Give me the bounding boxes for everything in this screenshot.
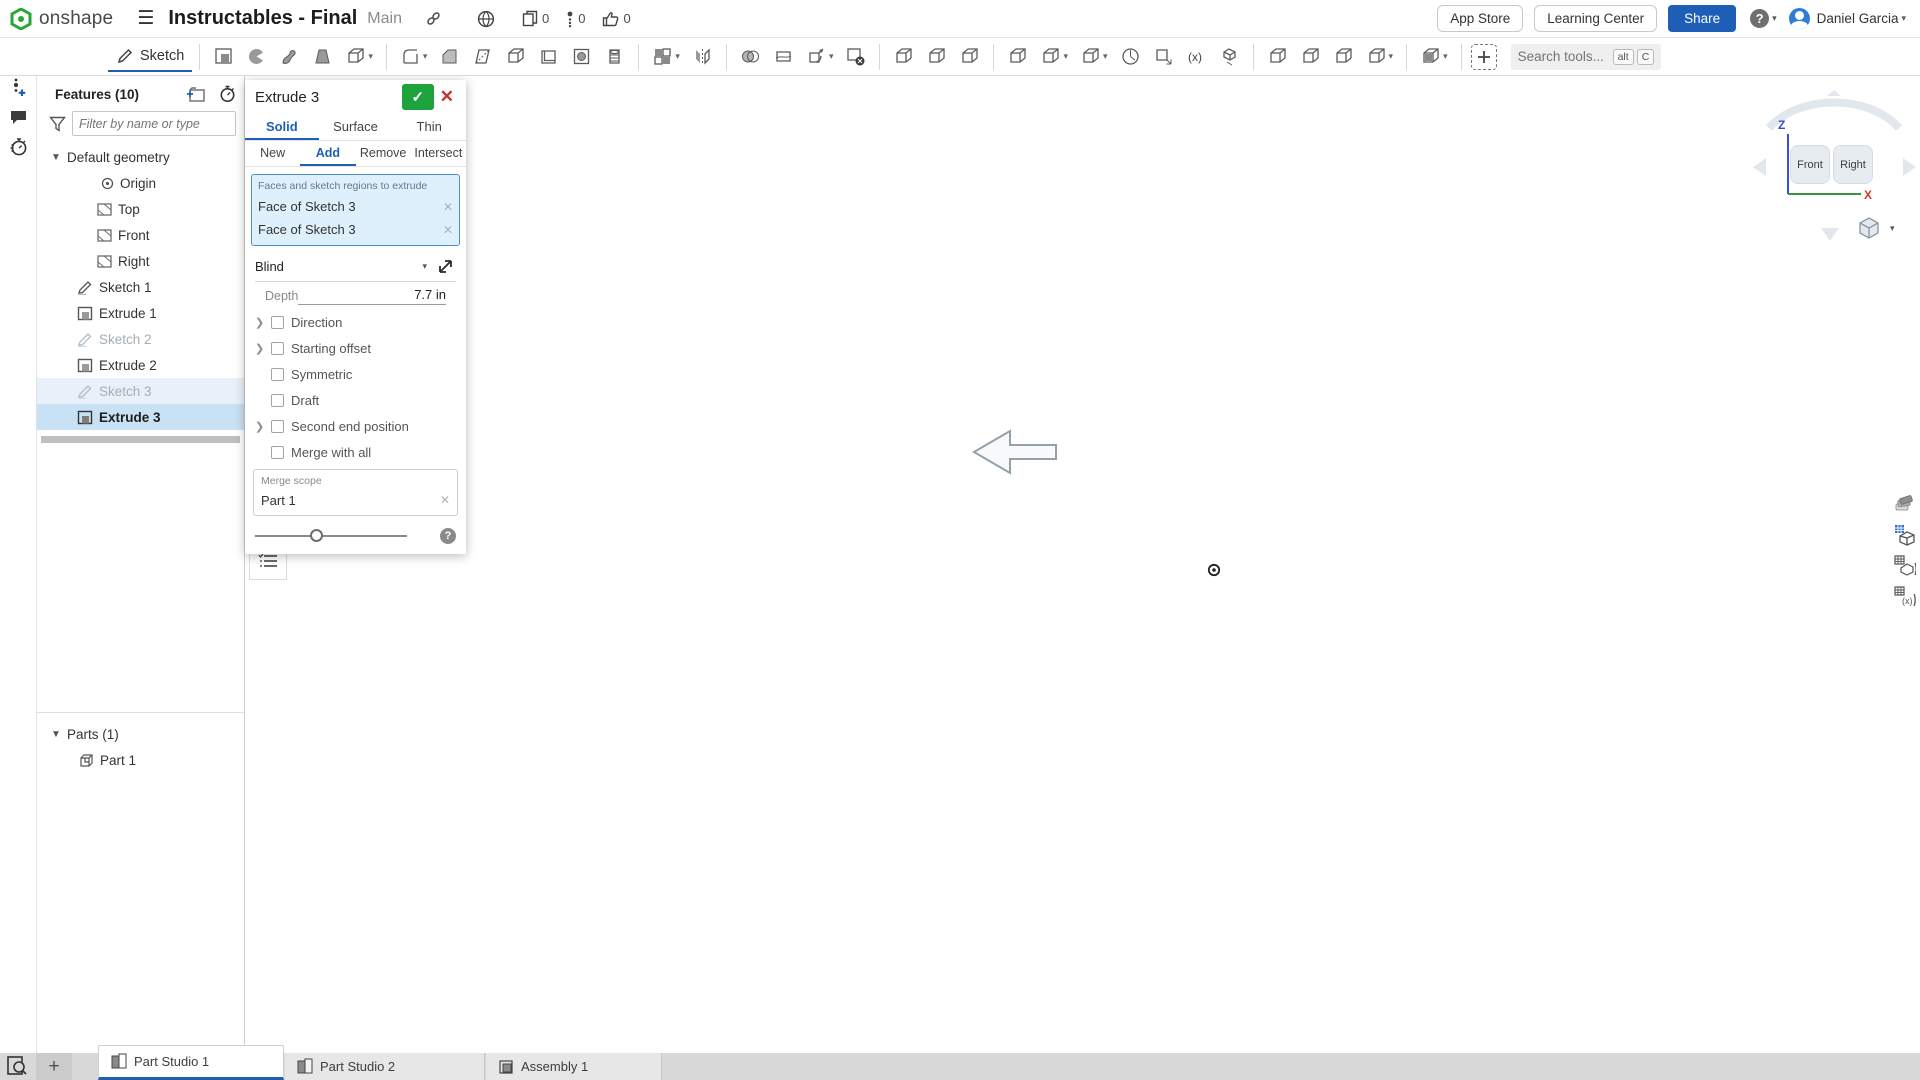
learning-center-button[interactable]: Learning Center [1534, 5, 1657, 32]
filter-icon[interactable] [49, 116, 66, 132]
left-icon-strip [0, 38, 37, 1053]
option-label: Starting offset [291, 341, 371, 356]
search-tools[interactable]: alt C [1511, 44, 1662, 70]
opacity-slider[interactable] [255, 535, 407, 537]
main-menu-icon[interactable]: ☰ [123, 7, 168, 30]
tree-label: Extrude 2 [99, 358, 157, 373]
replace-face-tool-icon[interactable] [955, 43, 984, 70]
tree-label: Extrude 1 [99, 306, 157, 321]
sketch-tool-button[interactable]: Sketch [108, 42, 192, 72]
end-condition-value: Blind [255, 259, 419, 274]
view-cube[interactable]: Front Right Z X ▾ [1745, 88, 1920, 253]
origin-icon [101, 177, 114, 190]
tab-label: Assembly 1 [521, 1059, 588, 1074]
tree-label: Part 1 [100, 753, 136, 768]
toolbar-separator [1461, 44, 1462, 70]
toolbar-separator [1253, 44, 1254, 70]
help-caret-icon[interactable]: ▾ [1772, 13, 1777, 24]
sketch-label: Sketch [140, 48, 184, 64]
tree-extrude-2[interactable]: Extrude 2 [37, 352, 244, 378]
selection-item-label: Face of Sketch 3 [258, 199, 356, 214]
issues-icon [566, 10, 574, 28]
tab-new[interactable]: New [245, 141, 300, 166]
add-folder-icon[interactable] [186, 87, 205, 102]
sketch-icon [77, 280, 93, 295]
sheet-metal-table-caret-icon[interactable]: ▾ [1389, 51, 1394, 62]
toolbar-separator [638, 44, 639, 70]
revolve-tool-icon[interactable] [242, 43, 271, 70]
expand-chevron-icon[interactable]: ❯ [255, 342, 264, 355]
derived-tool-icon[interactable] [1149, 43, 1178, 70]
fillet-caret-icon[interactable]: ▾ [423, 51, 428, 62]
custom-feature-tool-icon[interactable] [1471, 44, 1497, 70]
chevron-down-icon[interactable]: ▼ [51, 152, 61, 163]
tree-label: Right [118, 254, 150, 269]
extrude-direction-arrow[interactable] [968, 426, 1060, 478]
tree-label: Sketch 2 [99, 332, 152, 347]
move-face-tool-icon[interactable] [922, 43, 951, 70]
user-menu-caret-icon[interactable]: ▾ [1901, 13, 1906, 24]
variable-tool-icon[interactable]: (x) [1182, 43, 1211, 70]
part-studio-icon [111, 1053, 127, 1070]
features-header: Features (10) [55, 87, 186, 102]
sheet-metal-model-tool-icon[interactable] [1263, 43, 1292, 70]
tree-label: Front [118, 228, 150, 243]
parts-header-row[interactable]: ▼ Parts (1) [37, 721, 244, 747]
rollback-bar[interactable] [41, 436, 240, 443]
symmetric-option[interactable]: ❯ Symmetric [245, 361, 466, 387]
offset-surface-tool-icon[interactable]: ▾ [1036, 43, 1072, 70]
remove-merge-scope-icon[interactable]: ✕ [440, 493, 450, 507]
plane-icon [97, 203, 112, 216]
tree-extrude-1[interactable]: Extrude 1 [37, 300, 244, 326]
right-panel-toggles: (x) [1891, 490, 1918, 614]
tab-part-studio-1[interactable]: Part Studio 1 [98, 1045, 284, 1080]
remove-selection-icon[interactable]: ✕ [443, 200, 453, 214]
feature-toolbar: Sketch ▾▾▾▾▾▾(x)▾▾ alt C [0, 38, 1920, 76]
z-axis-label: Z [1778, 118, 1785, 132]
share-button[interactable]: Share [1668, 5, 1736, 32]
plane-icon [97, 255, 112, 268]
sheet-metal-table-tool-icon[interactable]: ▾ [1362, 43, 1398, 70]
issues-counter[interactable]: 0 [566, 10, 585, 28]
option-label: Symmetric [291, 367, 352, 382]
starting-offset-checkbox[interactable] [271, 342, 284, 355]
axis-triad [1785, 132, 1871, 198]
toolbar-separator [726, 44, 727, 70]
manage-tabs-icon[interactable] [6, 1056, 28, 1077]
stopwatch-icon[interactable] [219, 85, 236, 103]
second-end-position-option[interactable]: ❯ Second end position [245, 413, 466, 439]
delete-part-tool-icon[interactable] [841, 43, 870, 70]
extrude-icon [77, 358, 93, 373]
flip-direction-icon[interactable] [437, 258, 456, 275]
features-panel: Features (10) ▼ Default geometry Origin … [37, 75, 245, 1053]
toolbar-separator [199, 44, 200, 70]
thumbs-up-icon [602, 10, 619, 27]
split-tool-icon[interactable] [769, 43, 798, 70]
tree-sketch-1[interactable]: Sketch 1 [37, 274, 244, 300]
comments-icon[interactable] [0, 102, 37, 132]
rotate-down-arrow-icon[interactable] [1821, 228, 1839, 241]
dialog-help-icon[interactable]: ? [440, 528, 456, 544]
symmetric-checkbox[interactable] [271, 368, 284, 381]
insert-tab-button[interactable]: + [36, 1053, 72, 1080]
toolbar-separator [386, 44, 387, 70]
tree-sketch-2[interactable]: Sketch 2 [37, 326, 244, 352]
tree-label: Default geometry [67, 150, 170, 165]
flange-tool-icon[interactable] [1296, 43, 1325, 70]
copies-count: 0 [542, 11, 549, 26]
remove-selection-icon[interactable]: ✕ [443, 223, 453, 237]
filter-input[interactable] [72, 111, 236, 136]
shortcut-c-badge: C [1637, 49, 1655, 65]
tree-sketch-3[interactable]: Sketch 3 [37, 378, 244, 404]
create-version-icon[interactable] [0, 72, 37, 102]
direction-option[interactable]: ❯ Direction [245, 309, 466, 335]
parts-header: Parts (1) [67, 727, 119, 742]
toolbar-separator [1406, 44, 1407, 70]
toolbar-separator [879, 44, 880, 70]
tab-thin[interactable]: Thin [392, 114, 466, 140]
svg-text:(x): (x) [1902, 596, 1913, 606]
shortcut-alt-badge: alt [1613, 49, 1634, 65]
end-condition-dropdown[interactable]: Blind ▾ [255, 252, 456, 282]
option-label: Second end position [291, 419, 409, 434]
thicken-tool-icon[interactable]: ▾ [341, 43, 377, 70]
search-tools-input[interactable] [1518, 49, 1610, 64]
extrude-icon [77, 306, 93, 321]
sweep-tool-icon[interactable] [275, 43, 304, 70]
tree-label: Sketch 3 [99, 384, 152, 399]
top-bar: onshape ☰ Instructables - Final Main 0 0… [0, 0, 1920, 38]
thicken-caret-icon[interactable]: ▾ [368, 51, 373, 62]
tab-label: Part Studio 1 [134, 1054, 209, 1069]
share-link-icon[interactable] [425, 10, 442, 27]
draft-tool-icon[interactable] [468, 43, 497, 70]
extrude-tool-icon[interactable] [209, 43, 238, 70]
shell-tool-icon[interactable] [534, 43, 563, 70]
document-tabs-bar: + Part Studio 1 Part Studio 2 Assembly 1 [0, 1053, 1920, 1080]
document-title: Instructables - Final [168, 7, 357, 30]
merge-scope-box[interactable]: Merge scope Part 1 ✕ [253, 469, 458, 516]
toolbar-separator [993, 44, 994, 70]
tab-part-studio-2[interactable]: Part Studio 2 [285, 1053, 485, 1080]
user-name[interactable]: Daniel Garcia [1817, 11, 1899, 26]
depth-label: Depth [265, 289, 298, 303]
shaded-cube-icon [1857, 216, 1881, 240]
svg-text:(x): (x) [1188, 50, 1202, 64]
hole-tool-icon[interactable] [567, 43, 596, 70]
tree-part-1[interactable]: Part 1 [37, 747, 244, 773]
part-icon [79, 753, 94, 768]
cancel-button[interactable]: ✕ [434, 87, 460, 107]
graphics-area[interactable] [245, 75, 1920, 1053]
tree-label: Origin [120, 176, 156, 191]
configuration-table-icon[interactable] [1891, 521, 1918, 548]
tree-label: Top [118, 202, 140, 217]
chamfer-tool-icon[interactable] [435, 43, 464, 70]
named-views-caret-icon[interactable]: ▾ [1443, 51, 1448, 62]
tab-intersect[interactable]: Intersect [411, 141, 466, 166]
copies-counter[interactable]: 0 [522, 10, 549, 27]
option-label: Draft [291, 393, 319, 408]
selection-item[interactable]: Face of Sketch 3 ✕ [258, 195, 453, 218]
named-views-tool-icon[interactable]: ▾ [1416, 43, 1452, 70]
merge-with-all-option[interactable]: ❯ Merge with all [245, 439, 466, 465]
frame-tool-icon[interactable] [1215, 43, 1244, 70]
enclose-tool-icon[interactable] [1329, 43, 1358, 70]
tab-solid[interactable]: Solid [245, 114, 319, 140]
onshape-logo[interactable]: onshape [0, 8, 123, 30]
rotate-right-arrow-icon[interactable] [1903, 158, 1916, 176]
draft-option[interactable]: ❯ Draft [245, 387, 466, 413]
workspace-name[interactable]: Main [367, 10, 402, 28]
direction-checkbox[interactable] [271, 316, 284, 329]
copies-icon [522, 10, 538, 27]
helix-caret-icon[interactable]: ▾ [1103, 51, 1108, 62]
chevron-down-icon[interactable]: ▼ [51, 729, 61, 740]
selection-list[interactable]: Faces and sketch regions to extrude Face… [251, 174, 460, 246]
tree-extrude-3[interactable]: Extrude 3 [37, 404, 244, 430]
likes-counter[interactable]: 0 [602, 10, 630, 27]
dropdown-caret-icon: ▾ [422, 261, 427, 272]
plane-tool-icon[interactable] [1003, 43, 1032, 70]
tree-default-geometry[interactable]: ▼ Default geometry [37, 144, 244, 170]
circular-pattern-tool-icon[interactable] [1116, 43, 1145, 70]
option-label: Merge with all [291, 445, 371, 460]
view-options-caret-icon[interactable]: ▾ [1890, 223, 1895, 234]
transform-tool-icon[interactable]: ▾ [802, 43, 838, 70]
second-end-position-checkbox[interactable] [271, 420, 284, 433]
loft-tool-icon[interactable] [308, 43, 337, 70]
expand-chevron-icon[interactable]: ❯ [255, 316, 264, 329]
option-label: Direction [291, 315, 342, 330]
draft-checkbox[interactable] [271, 394, 284, 407]
help-icon[interactable]: ? [1750, 9, 1769, 28]
mirror-tool-icon[interactable] [688, 43, 717, 70]
depth-input[interactable]: 7.7 in [298, 287, 446, 305]
pencil-icon [116, 47, 134, 65]
thread-tool-icon[interactable] [600, 43, 629, 70]
tab-surface[interactable]: Surface [319, 114, 393, 140]
tab-label: Part Studio 2 [320, 1059, 395, 1074]
modify-fillet-tool-icon[interactable] [889, 43, 918, 70]
starting-offset-option[interactable]: ❯ Starting offset [245, 335, 466, 361]
transform-caret-icon[interactable]: ▾ [829, 51, 834, 62]
extrude-dialog: Extrude 3 ✓ ✕ Solid Surface Thin New Add… [245, 80, 466, 554]
logo-text: onshape [39, 8, 113, 30]
appearance-panel-icon[interactable] [1891, 490, 1918, 517]
onshape-logo-icon [10, 8, 32, 30]
rotate-left-arrow-icon[interactable] [1753, 158, 1766, 176]
helix-tool-icon[interactable]: ▾ [1076, 43, 1112, 70]
tree-plane-front[interactable]: Front [37, 222, 244, 248]
opacity-slider-handle[interactable] [310, 529, 323, 542]
linear-pattern-tool-icon[interactable]: ▾ [648, 43, 684, 70]
view-options[interactable]: ▾ [1857, 216, 1895, 240]
user-avatar[interactable] [1789, 8, 1810, 29]
parts-section: ▼ Parts (1) Part 1 [37, 712, 244, 773]
origin-marker[interactable] [1207, 563, 1221, 577]
fillet-tool-icon[interactable]: ▾ [396, 43, 432, 70]
likes-count: 0 [623, 11, 630, 26]
merge-with-all-checkbox[interactable] [271, 446, 284, 459]
sketch-icon [77, 384, 93, 399]
merge-scope-label: Merge scope [261, 475, 450, 487]
public-document-icon[interactable] [477, 10, 495, 28]
offset-surface-caret-icon[interactable]: ▾ [1063, 51, 1068, 62]
app-store-button[interactable]: App Store [1437, 5, 1523, 32]
tree-plane-right[interactable]: Right [37, 248, 244, 274]
history-stopwatch-icon[interactable] [0, 132, 37, 162]
selection-item-label: Face of Sketch 3 [258, 222, 356, 237]
plane-icon [97, 229, 112, 242]
expand-chevron-icon[interactable]: ❯ [255, 420, 264, 433]
tab-add[interactable]: Add [300, 141, 355, 166]
merge-scope-value: Part 1 [261, 493, 296, 508]
linear-pattern-caret-icon[interactable]: ▾ [675, 51, 680, 62]
assembly-icon [498, 1059, 514, 1075]
selection-item[interactable]: Face of Sketch 3 ✕ [258, 218, 453, 241]
tree-origin[interactable]: Origin [37, 170, 244, 196]
dialog-title: Extrude 3 [255, 89, 402, 106]
tree-label: Sketch 1 [99, 280, 152, 295]
tab-remove[interactable]: Remove [356, 141, 411, 166]
selection-list-label: Faces and sketch regions to extrude [258, 180, 453, 192]
configuration-variables-icon[interactable]: (x) [1891, 583, 1918, 610]
extrude-icon [77, 410, 93, 425]
boolean-tool-icon[interactable] [736, 43, 765, 70]
sketch-icon [77, 332, 93, 347]
part-studio-icon [297, 1058, 313, 1075]
confirm-button[interactable]: ✓ [402, 84, 434, 110]
configured-features-icon[interactable] [1891, 552, 1918, 579]
rib-tool-icon[interactable] [501, 43, 530, 70]
tree-plane-top[interactable]: Top [37, 196, 244, 222]
tab-assembly-1[interactable]: Assembly 1 [486, 1053, 662, 1080]
tree-label: Extrude 3 [99, 410, 161, 425]
issues-count: 0 [578, 11, 585, 26]
